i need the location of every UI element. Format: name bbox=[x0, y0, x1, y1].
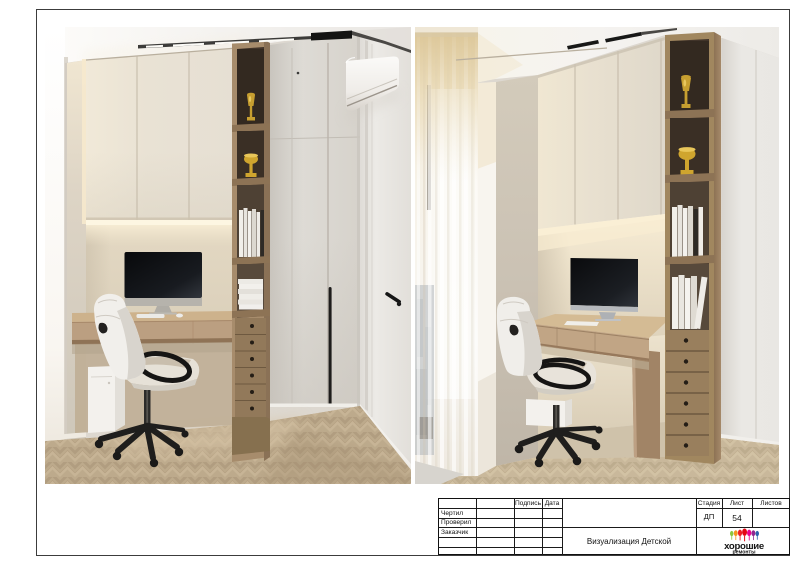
svg-text:ремонты: ремонты bbox=[732, 550, 756, 555]
